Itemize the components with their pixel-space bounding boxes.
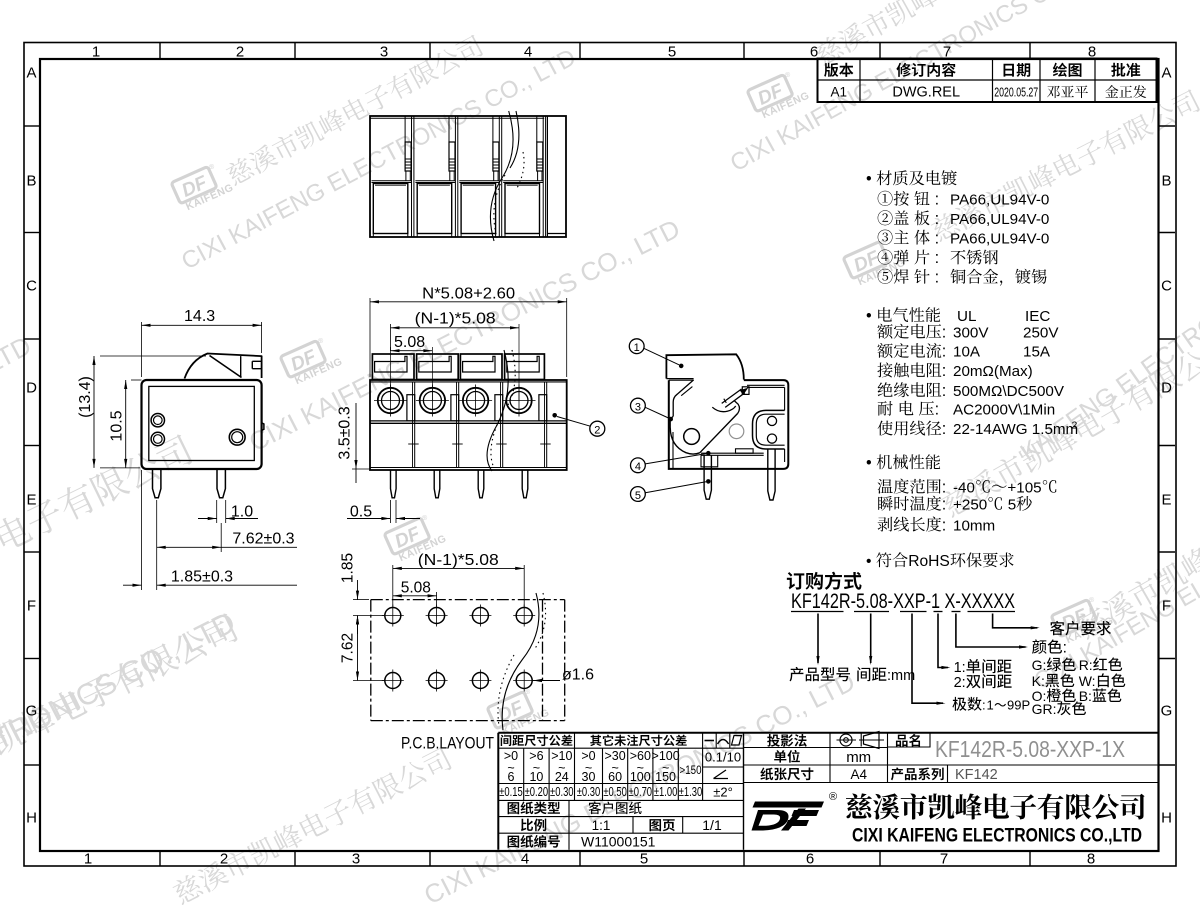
- svg-text:ø1.6: ø1.6: [562, 667, 594, 684]
- svg-text:1/1: 1/1: [702, 817, 722, 833]
- svg-text:A4: A4: [850, 767, 867, 782]
- svg-text:1: 1: [634, 342, 640, 354]
- svg-text::mm: :mm: [887, 668, 915, 684]
- svg-text:10A: 10A: [953, 344, 981, 361]
- svg-text:5: 5: [1008, 497, 1016, 514]
- svg-text::: :: [935, 229, 940, 247]
- svg-text::: :: [942, 478, 947, 496]
- svg-text:5.08: 5.08: [394, 334, 425, 351]
- svg-text:2020.05.27: 2020.05.27: [994, 86, 1038, 100]
- svg-text:4: 4: [635, 461, 641, 473]
- svg-text:6: 6: [508, 770, 515, 784]
- svg-text:B:: B:: [1079, 688, 1092, 704]
- svg-text:C: C: [1161, 278, 1172, 295]
- svg-text:5: 5: [668, 44, 676, 61]
- svg-text:±2°: ±2°: [713, 785, 733, 800]
- svg-text:W11000151: W11000151: [581, 834, 656, 850]
- svg-text:KF142: KF142: [955, 767, 998, 783]
- svg-text:A: A: [26, 65, 36, 82]
- svg-text:6: 6: [806, 851, 814, 868]
- svg-text:300V: 300V: [953, 324, 989, 341]
- svg-text:®: ®: [829, 791, 837, 803]
- svg-text::: :: [942, 496, 947, 514]
- svg-text:C: C: [26, 278, 37, 295]
- svg-text:W:: W:: [1079, 673, 1096, 689]
- svg-text:D: D: [1161, 380, 1172, 397]
- svg-text:PA66,UL94V-0: PA66,UL94V-0: [950, 211, 1049, 228]
- svg-text:±0.70: ±0.70: [629, 785, 653, 799]
- svg-text:±0.30: ±0.30: [550, 785, 574, 799]
- svg-text:150: 150: [655, 770, 676, 784]
- svg-text:1.0: 1.0: [231, 504, 253, 521]
- svg-text:±1.00: ±1.00: [654, 785, 678, 799]
- svg-text:4: 4: [521, 851, 529, 868]
- svg-text::: :: [942, 420, 947, 438]
- svg-text::: :: [935, 400, 940, 418]
- svg-text:CIXI KAIFENG ELECTRONICS CO.,L: CIXI KAIFENG ELECTRONICS CO.,LTD: [852, 825, 1142, 847]
- svg-text:5: 5: [635, 490, 641, 502]
- svg-text:0.5: 0.5: [350, 504, 372, 521]
- svg-text:60: 60: [608, 770, 622, 784]
- svg-text:A1: A1: [831, 85, 848, 100]
- svg-text:AC2000V\1Min: AC2000V\1Min: [953, 401, 1055, 418]
- svg-text:1.85±0.3: 1.85±0.3: [171, 569, 233, 586]
- svg-text:2:: 2:: [954, 675, 966, 691]
- svg-text:D: D: [26, 380, 37, 397]
- svg-text:±1.30: ±1.30: [679, 785, 703, 799]
- svg-text:•: •: [866, 307, 872, 325]
- svg-text:A: A: [1161, 65, 1171, 82]
- svg-text:5.08: 5.08: [401, 579, 431, 596]
- svg-text:H: H: [26, 810, 37, 827]
- svg-text:7.62±0.3: 7.62±0.3: [232, 531, 294, 548]
- svg-text:CIXI KAIFENG ELECTRONICS CO.,: CIXI KAIFENG ELECTRONICS CO., LTD: [0, 606, 241, 886]
- svg-text::: :: [942, 382, 947, 400]
- svg-text:±0.15: ±0.15: [499, 785, 523, 799]
- svg-text:G: G: [26, 703, 38, 720]
- svg-text:F: F: [27, 598, 36, 615]
- svg-text::: :: [935, 210, 940, 228]
- svg-text:15A: 15A: [1023, 344, 1051, 361]
- svg-text:0.1/10: 0.1/10: [705, 750, 741, 765]
- svg-text::: :: [942, 343, 947, 361]
- svg-text:E: E: [26, 492, 36, 509]
- svg-text:100: 100: [630, 770, 651, 784]
- svg-text:7: 7: [940, 851, 948, 868]
- svg-text:3: 3: [635, 401, 641, 413]
- svg-text:1:1: 1:1: [592, 818, 611, 833]
- svg-text:H: H: [1161, 810, 1172, 827]
- svg-text:CIXI KAIFENG ELECTRONICS CO.,: CIXI KAIFENG ELECTRONICS CO., LTD: [177, 44, 580, 275]
- svg-text:KF142R-5.08-XXP-1 X-XXXXX: KF142R-5.08-XXP-1 X-XXXXX: [791, 589, 1015, 613]
- svg-text::: :: [935, 269, 940, 287]
- svg-text:20mΩ(Max): 20mΩ(Max): [953, 363, 1033, 380]
- svg-text:•: •: [866, 454, 872, 472]
- svg-text::: :: [1063, 640, 1067, 657]
- svg-text:3.5±0.3: 3.5±0.3: [337, 406, 354, 459]
- svg-text:•: •: [866, 170, 872, 188]
- svg-text::: :: [935, 249, 940, 267]
- svg-text:1: 1: [84, 851, 92, 868]
- svg-text:99P: 99P: [1007, 698, 1030, 713]
- svg-text:7.62: 7.62: [340, 633, 357, 663]
- svg-text:+250: +250: [953, 497, 987, 514]
- svg-text:1: 1: [92, 44, 100, 61]
- svg-text:8: 8: [1087, 851, 1095, 868]
- svg-text:±0.20: ±0.20: [525, 785, 549, 799]
- svg-text:22-14AWG 1.5mm: 22-14AWG 1.5mm: [953, 421, 1078, 438]
- svg-text:30: 30: [582, 770, 596, 784]
- svg-text:14.3: 14.3: [184, 308, 215, 325]
- svg-text:-40: -40: [953, 479, 975, 496]
- svg-text::: :: [935, 191, 940, 209]
- svg-text:DWG.REL: DWG.REL: [892, 85, 960, 101]
- svg-text:2: 2: [220, 851, 228, 868]
- svg-text:±0.50: ±0.50: [603, 785, 627, 799]
- svg-text:IEC: IEC: [1025, 308, 1050, 325]
- svg-text:2: 2: [236, 44, 244, 61]
- svg-text:N*5.08+2.60: N*5.08+2.60: [422, 285, 515, 302]
- svg-text:G:: G:: [1032, 657, 1047, 673]
- svg-text:10.5: 10.5: [109, 410, 126, 441]
- svg-text:E: E: [1161, 492, 1171, 509]
- svg-text:3: 3: [380, 44, 388, 61]
- svg-text:500MΩ\DC500V: 500MΩ\DC500V: [953, 383, 1065, 400]
- svg-text:KF142R-5.08-XXP-1X: KF142R-5.08-XXP-1X: [935, 736, 1125, 762]
- svg-text:mm: mm: [846, 749, 871, 766]
- svg-text:P.C.B.LAYOUT: P.C.B.LAYOUT: [401, 735, 494, 753]
- svg-text::: :: [942, 323, 947, 341]
- svg-text::: :: [942, 516, 947, 534]
- svg-text:1:: 1:: [954, 660, 966, 676]
- svg-text:GR:: GR:: [1032, 701, 1057, 717]
- svg-text:K:: K:: [1032, 673, 1045, 689]
- svg-text:PA66,UL94V-0: PA66,UL94V-0: [950, 192, 1049, 209]
- svg-text:(N-1)*5.08: (N-1)*5.08: [415, 311, 496, 328]
- svg-text:(13.4): (13.4): [77, 376, 94, 418]
- svg-text:G: G: [1161, 703, 1173, 720]
- svg-text:5: 5: [640, 851, 648, 868]
- svg-text:B: B: [26, 173, 36, 190]
- svg-text:2: 2: [1072, 420, 1078, 432]
- svg-text:(N-1)*5.08: (N-1)*5.08: [418, 552, 499, 569]
- svg-text::: :: [982, 698, 986, 713]
- svg-text:10mm: 10mm: [953, 517, 995, 534]
- svg-text:2: 2: [594, 425, 600, 437]
- svg-text:±0.30: ±0.30: [577, 785, 601, 799]
- svg-text:24: 24: [555, 770, 569, 784]
- svg-text:250V: 250V: [1023, 324, 1059, 341]
- svg-text::: :: [942, 362, 947, 380]
- svg-text:1.85: 1.85: [340, 553, 357, 583]
- svg-text:B: B: [1161, 173, 1171, 190]
- svg-text:10: 10: [529, 770, 543, 784]
- svg-text:3: 3: [352, 851, 360, 868]
- svg-text:R:: R:: [1079, 657, 1093, 673]
- svg-text:•: •: [866, 553, 871, 570]
- svg-text:>150: >150: [680, 763, 702, 777]
- svg-text:PA66,UL94V-0: PA66,UL94V-0: [950, 230, 1049, 247]
- svg-text:4: 4: [524, 44, 532, 61]
- svg-text:1: 1: [987, 698, 994, 713]
- svg-text:F: F: [1162, 598, 1171, 615]
- svg-text:RoHS: RoHS: [908, 553, 950, 570]
- svg-text:+105: +105: [1007, 479, 1041, 496]
- svg-text:UL: UL: [957, 308, 976, 325]
